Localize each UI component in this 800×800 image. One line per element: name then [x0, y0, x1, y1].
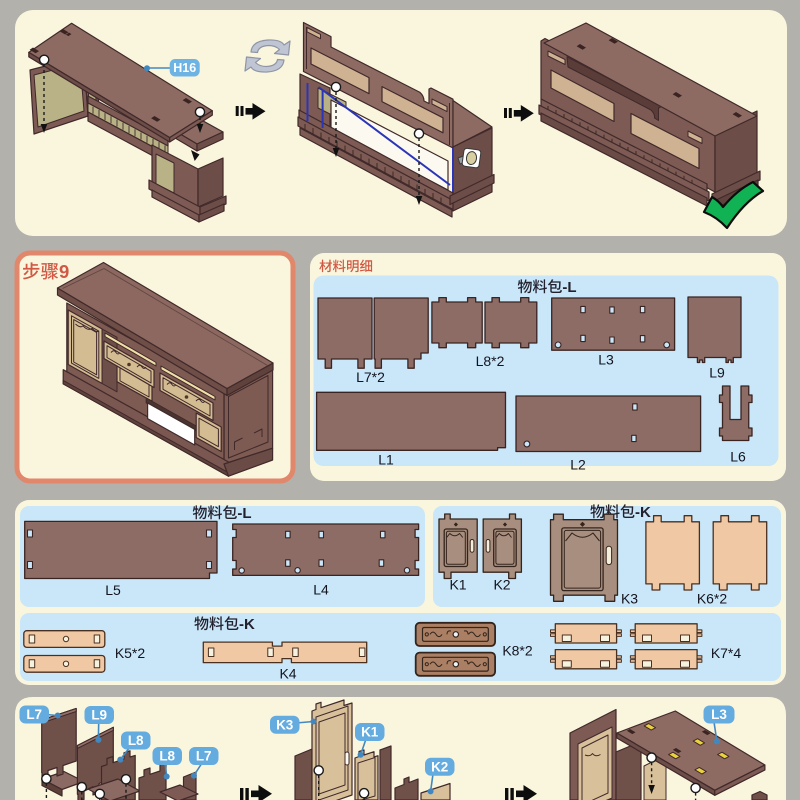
- svg-text:L8: L8: [128, 733, 144, 748]
- svg-text:-L: -L: [237, 505, 251, 522]
- svg-text:L8: L8: [159, 749, 175, 764]
- svg-text:-K: -K: [239, 616, 255, 633]
- svg-text:K3: K3: [621, 591, 638, 607]
- svg-text:K3: K3: [276, 717, 294, 732]
- svg-text:-K: -K: [635, 504, 651, 521]
- svg-text:L7*2: L7*2: [356, 369, 385, 385]
- svg-text:L1: L1: [378, 452, 394, 468]
- svg-text:-L: -L: [562, 279, 576, 296]
- svg-text:L3: L3: [598, 352, 614, 368]
- svg-text:L2: L2: [570, 457, 586, 473]
- svg-text:K2: K2: [493, 577, 510, 593]
- svg-text:K6*2: K6*2: [697, 591, 728, 607]
- svg-text:K8*2: K8*2: [502, 643, 533, 659]
- svg-text:9: 9: [59, 261, 69, 282]
- svg-text:L9: L9: [91, 708, 107, 723]
- svg-text:L8*2: L8*2: [476, 353, 505, 369]
- svg-text:K1: K1: [449, 577, 466, 593]
- svg-text:L5: L5: [105, 582, 121, 598]
- svg-text:L6: L6: [730, 449, 746, 465]
- svg-text:K2: K2: [431, 759, 448, 774]
- svg-text:K7*4: K7*4: [711, 645, 742, 661]
- svg-text:K1: K1: [361, 725, 379, 740]
- svg-text:L7: L7: [26, 707, 42, 722]
- svg-text:H16: H16: [173, 61, 196, 75]
- svg-text:K5*2: K5*2: [115, 645, 146, 661]
- svg-text:K4: K4: [279, 666, 296, 682]
- svg-text:L4: L4: [313, 582, 329, 598]
- svg-text:L3: L3: [711, 707, 727, 722]
- svg-text:L7: L7: [196, 749, 212, 764]
- svg-text:L9: L9: [709, 365, 725, 381]
